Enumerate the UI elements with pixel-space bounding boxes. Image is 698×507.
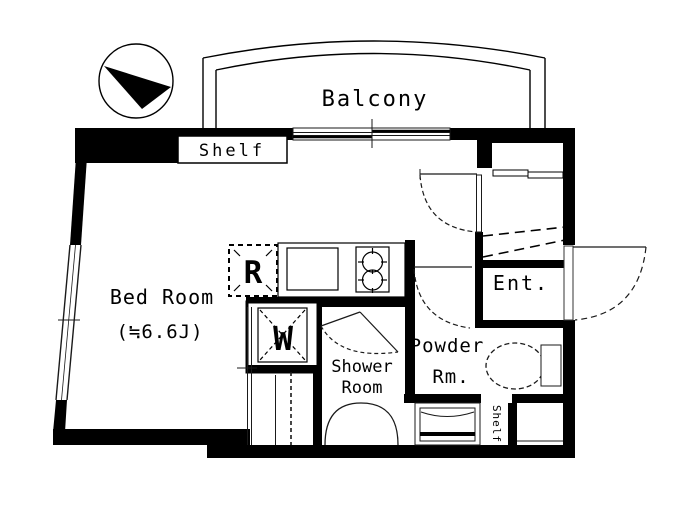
vanity-sink <box>415 403 480 445</box>
washer-label: W <box>273 319 293 358</box>
shower-room-label-2: Room <box>342 378 383 398</box>
refrigerator-label: R <box>244 255 263 291</box>
toilet <box>486 343 561 389</box>
shower-room-label-1: Shower <box>331 357 392 377</box>
bedroom-name-label: Bed Room <box>110 285 214 309</box>
bedroom-size-label: (≒6.6J) <box>116 321 203 343</box>
shelf-side-label: Shelf <box>490 405 503 443</box>
entrance-label: Ent. <box>493 271 549 295</box>
entry-closet <box>492 143 563 178</box>
bottom-right-closet <box>517 403 563 445</box>
floor-plan: Balcony Shelf Bed Room (≒6.6J) R W Showe… <box>0 0 698 507</box>
powder-room-label-2: Rm. <box>432 366 469 388</box>
powder-room-label-1: Powder <box>410 335 485 357</box>
kitchen-counter <box>278 243 405 297</box>
shelf-top-label: Shelf <box>199 141 265 161</box>
balcony-label: Balcony <box>322 87 429 112</box>
